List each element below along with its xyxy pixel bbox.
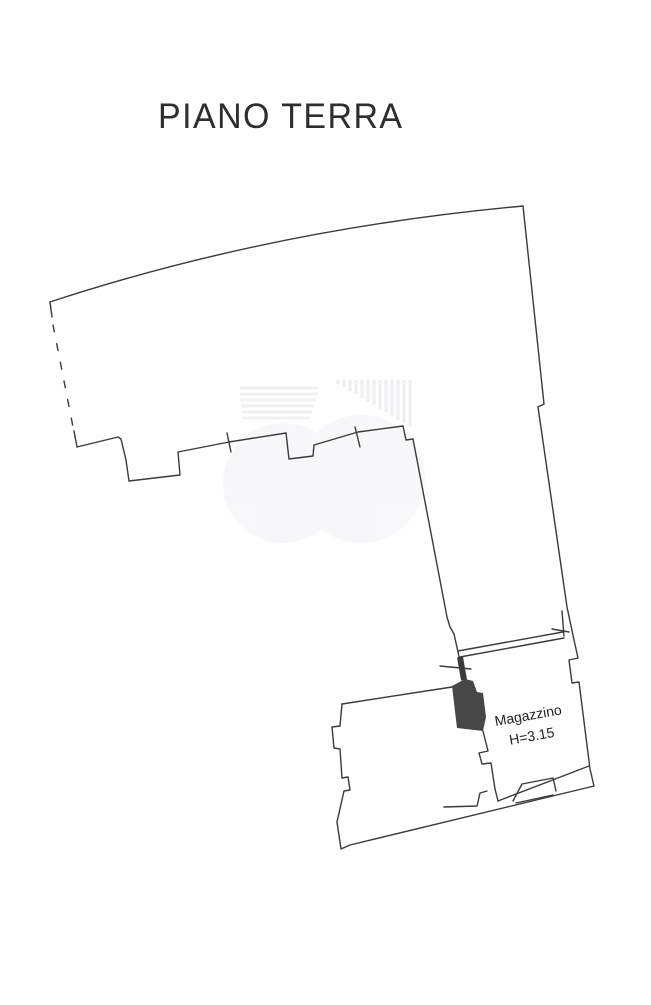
floorplan-drawing	[0, 0, 651, 1005]
corridor-left-wall	[413, 439, 458, 652]
watermark-stripes	[240, 388, 318, 418]
left-edge-end	[74, 431, 77, 447]
top-edge	[50, 206, 523, 302]
tick-mark-cross	[440, 666, 471, 669]
watermark-logo	[223, 380, 425, 543]
tick-mark-junction	[552, 629, 569, 632]
watermark-circle-right	[297, 415, 425, 543]
door-step-base	[516, 795, 553, 803]
lower-partition	[444, 791, 487, 807]
magazzino-bottom-wall-inner	[498, 766, 589, 801]
left-corner-stub	[50, 302, 52, 317]
scanned-floorplan-page: PIANO TERRA	[0, 0, 651, 1005]
left-edge-dashed	[53, 325, 75, 437]
small-room-top-wall	[342, 687, 452, 704]
small-room-left-wall	[332, 704, 350, 822]
bottom-edge	[337, 786, 594, 849]
